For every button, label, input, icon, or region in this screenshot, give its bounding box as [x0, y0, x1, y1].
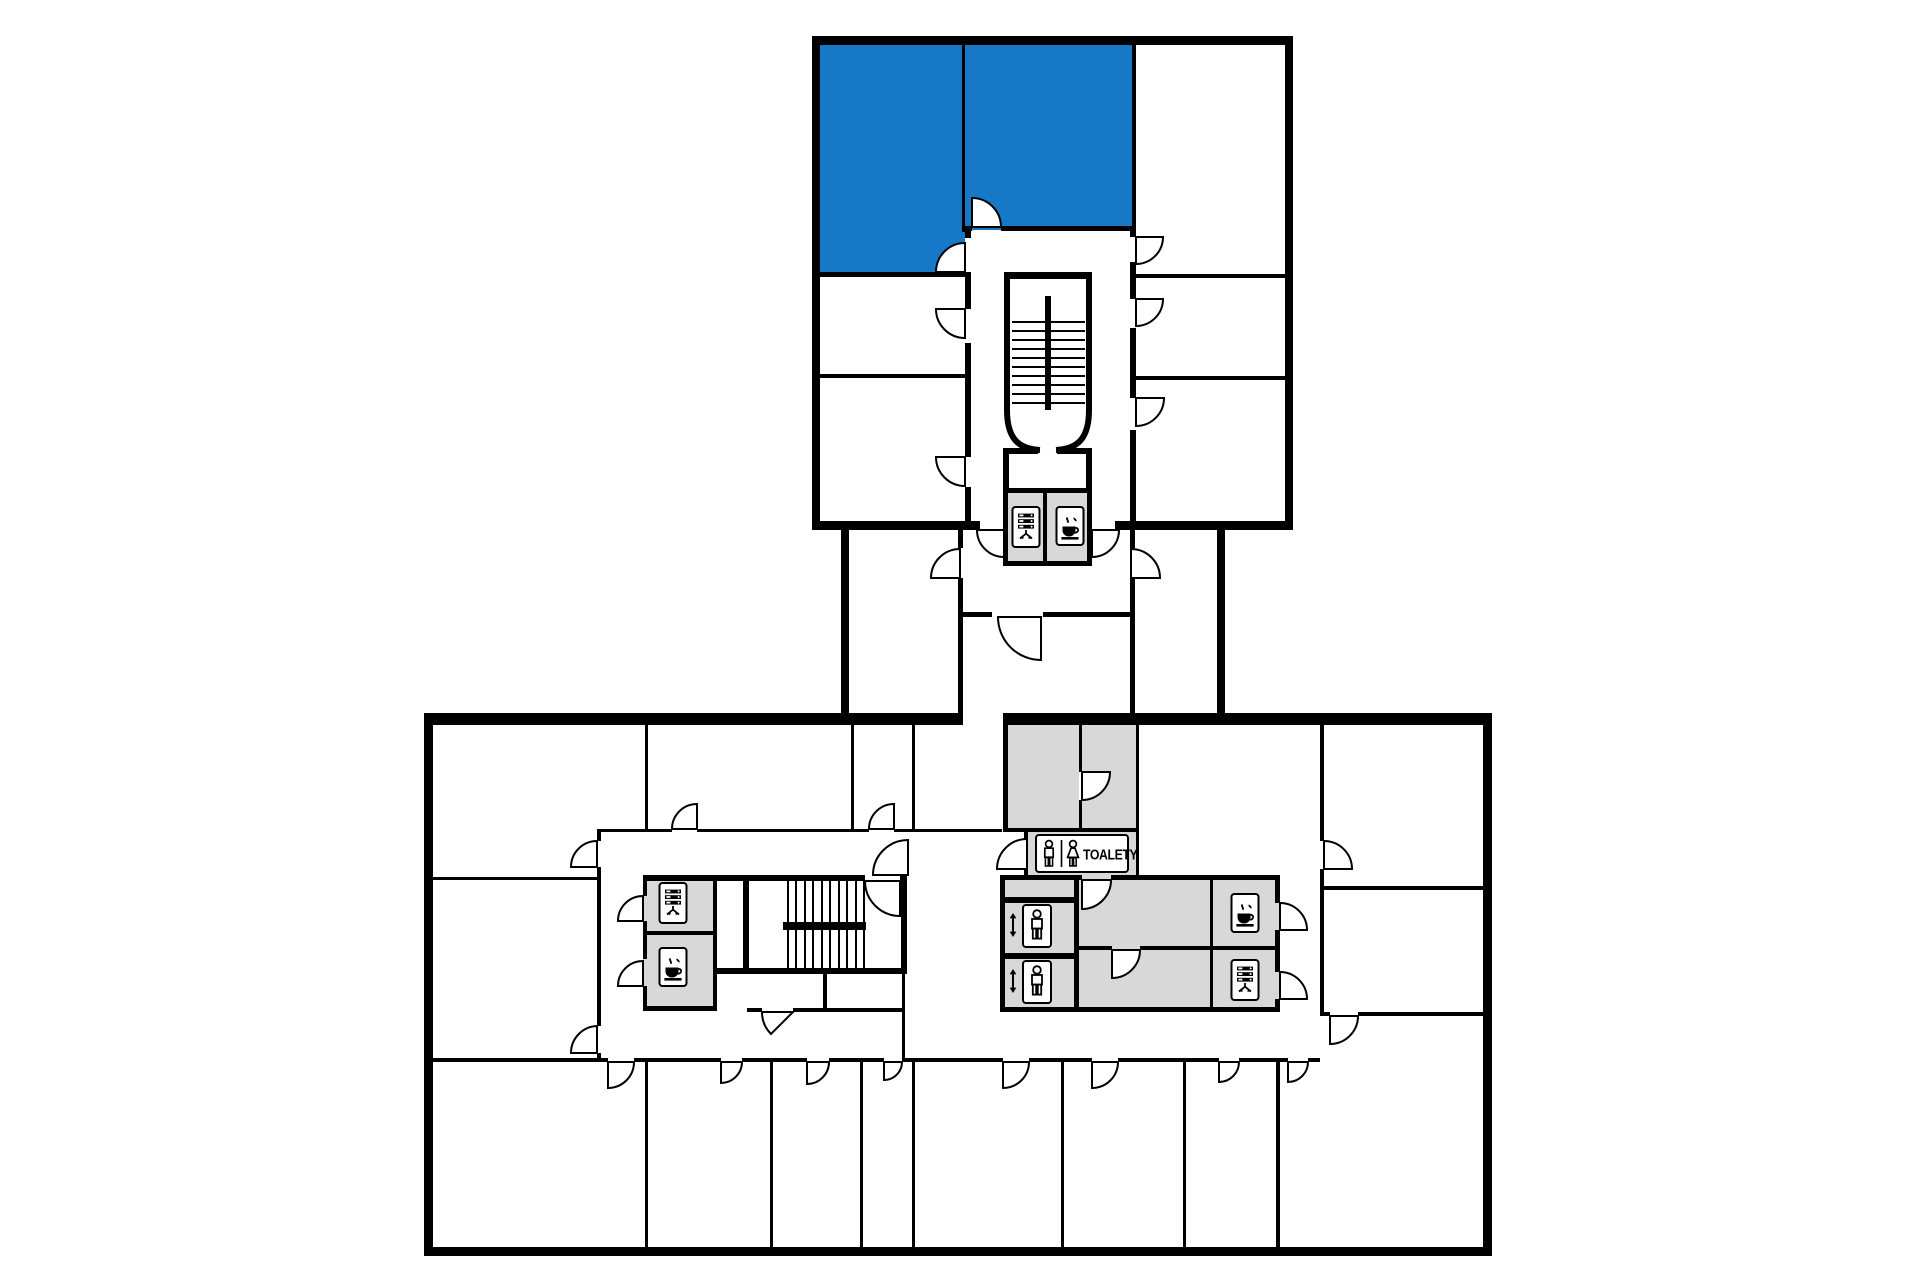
door: [869, 804, 894, 829]
door: [762, 1012, 793, 1034]
upper-stairwell: [1003, 272, 1092, 492]
door: [998, 617, 1041, 660]
door: [1136, 299, 1163, 326]
door: [1288, 1062, 1308, 1082]
vending-machine-icon: [660, 883, 687, 923]
door: [721, 1062, 742, 1083]
lower-wing: TOALETY: [424, 713, 1492, 1256]
door: [1003, 1062, 1029, 1088]
vending-machine-icon: [1232, 960, 1259, 1000]
upper-core-service-block: [1003, 488, 1092, 566]
lower-left-service-block: [643, 875, 717, 1011]
door: [1219, 1062, 1239, 1082]
door-stairwell: [865, 881, 900, 916]
floor-plan-canvas: TOALETY: [0, 0, 1920, 1276]
door: [571, 841, 597, 867]
coffee-icon: [1232, 894, 1259, 932]
door: [1136, 237, 1163, 264]
door: [1136, 398, 1164, 426]
elevator-icon: [1023, 961, 1051, 1003]
floor-plan: TOALETY: [0, 0, 1920, 1276]
lower-stairs-treads: [783, 881, 866, 968]
door: [1330, 1016, 1358, 1044]
door: [1131, 549, 1160, 578]
upper-wing: [812, 36, 1293, 566]
door: [618, 961, 643, 986]
toilet-sign: TOALETY: [1036, 835, 1138, 872]
coffee-icon: [660, 948, 687, 986]
door: [608, 1062, 634, 1088]
door-vending: [1280, 972, 1307, 999]
door: [672, 804, 697, 829]
toilet-sign-label: TOALETY: [1083, 846, 1138, 862]
elevator-icon: [1023, 905, 1051, 947]
door: [618, 896, 643, 921]
door-coffee-point: [1280, 903, 1307, 930]
door: [1092, 530, 1119, 557]
door: [571, 1026, 597, 1053]
door: [873, 840, 908, 875]
door: [977, 530, 1004, 557]
door: [1324, 841, 1352, 869]
coffee-icon: [1057, 507, 1084, 545]
vending-machine-icon: [1013, 507, 1040, 547]
highlighted-unit-left[interactable]: [816, 40, 965, 276]
door: [936, 309, 965, 338]
door: [884, 1062, 902, 1080]
door: [807, 1062, 829, 1084]
door: [936, 457, 965, 486]
lower-wing-partitions: [433, 714, 1483, 1247]
door: [1092, 1062, 1118, 1088]
lower-central-core: TOALETY: [1000, 714, 1280, 1012]
door-toilets: [997, 839, 1027, 869]
highlighted-unit-center[interactable]: [965, 40, 1135, 230]
upper-stairs-treads: [1012, 296, 1085, 410]
door: [931, 549, 960, 578]
lower-wing-outer-walls: [424, 713, 1492, 1256]
